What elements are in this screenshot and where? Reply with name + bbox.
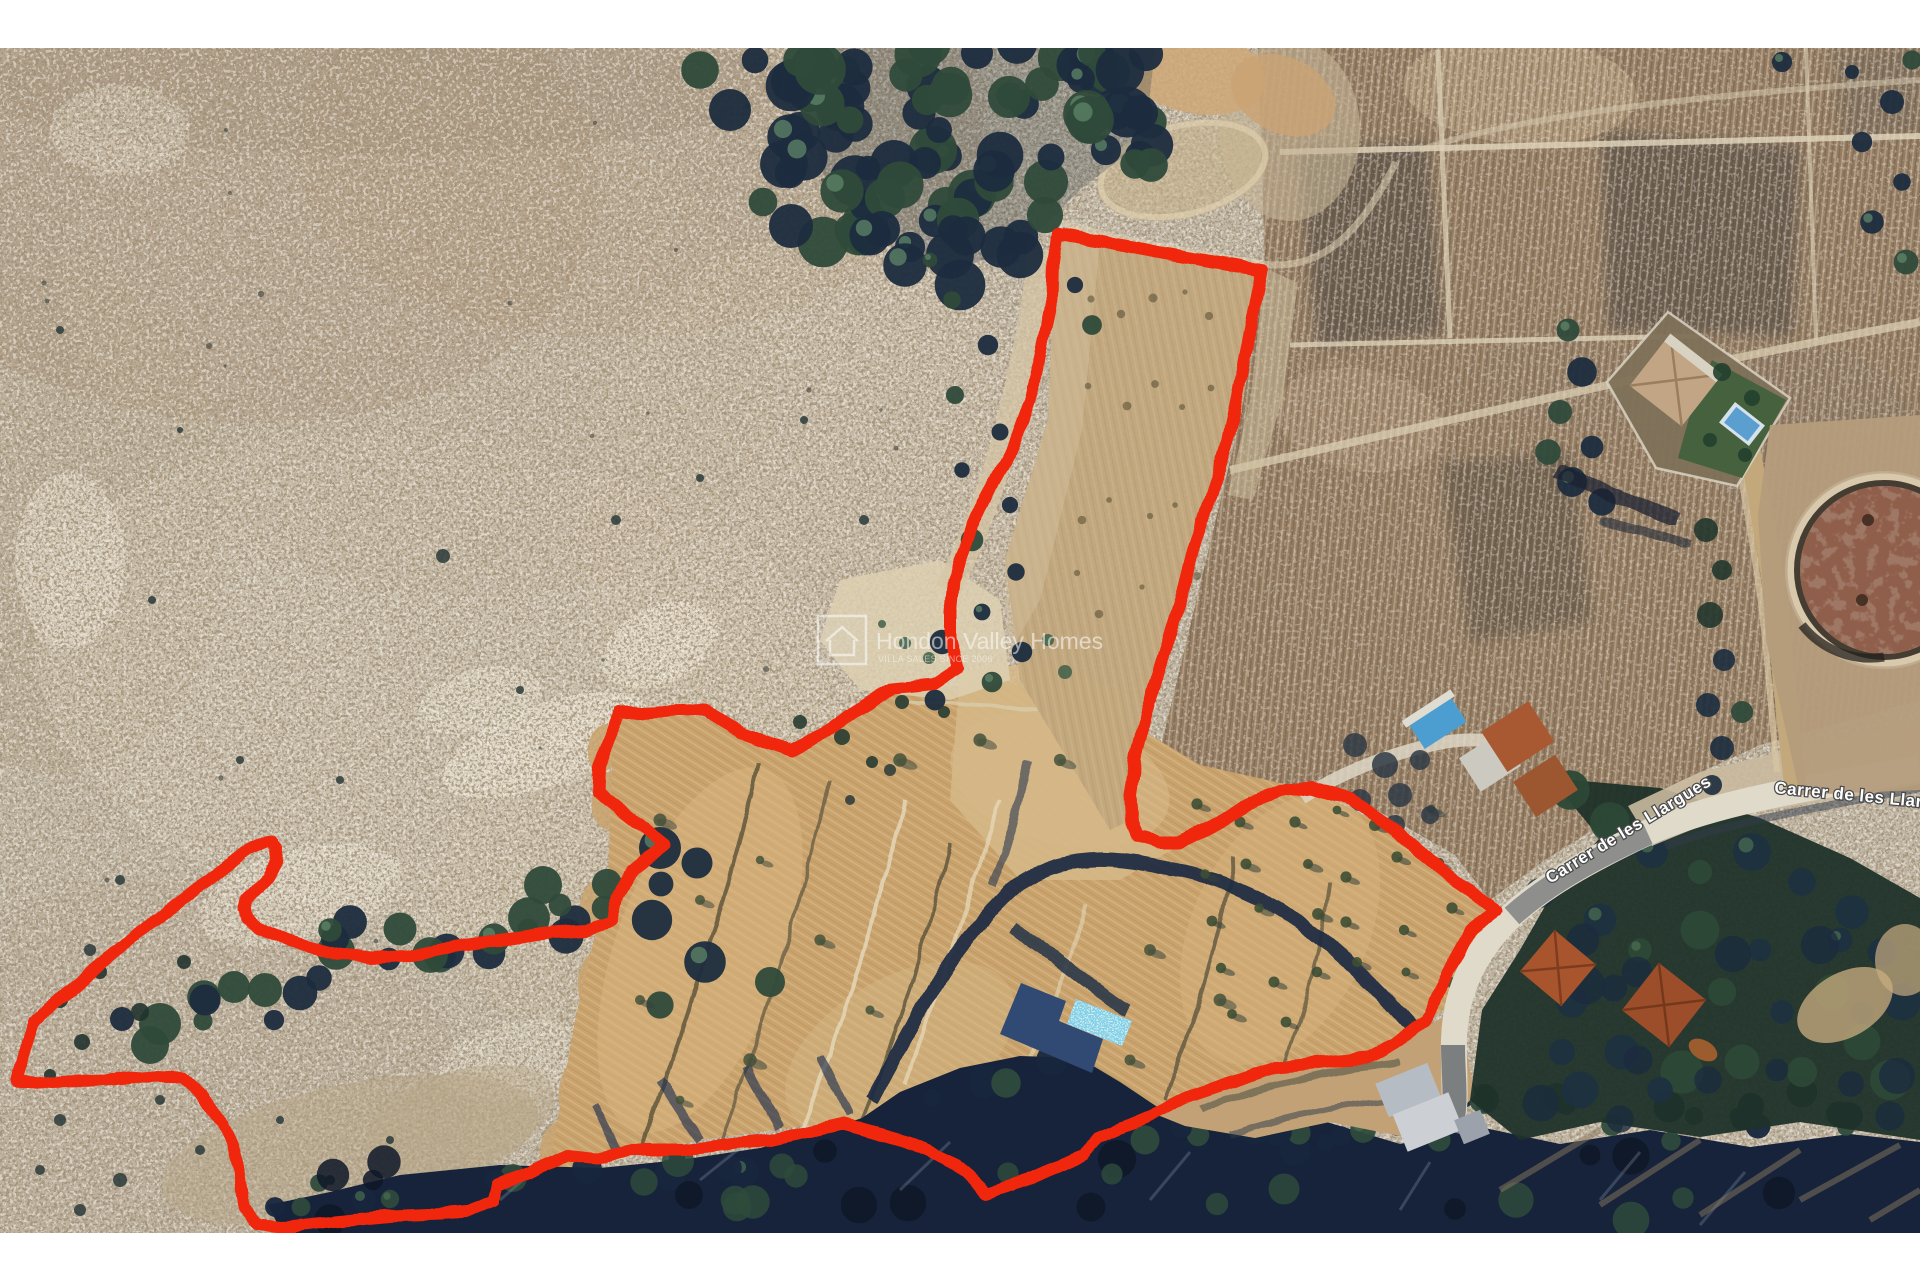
svg-text:Hondon Valley Homes: Hondon Valley Homes [876, 628, 1103, 654]
svg-text:VILLA SALES SINCE 2006: VILLA SALES SINCE 2006 [878, 654, 993, 664]
